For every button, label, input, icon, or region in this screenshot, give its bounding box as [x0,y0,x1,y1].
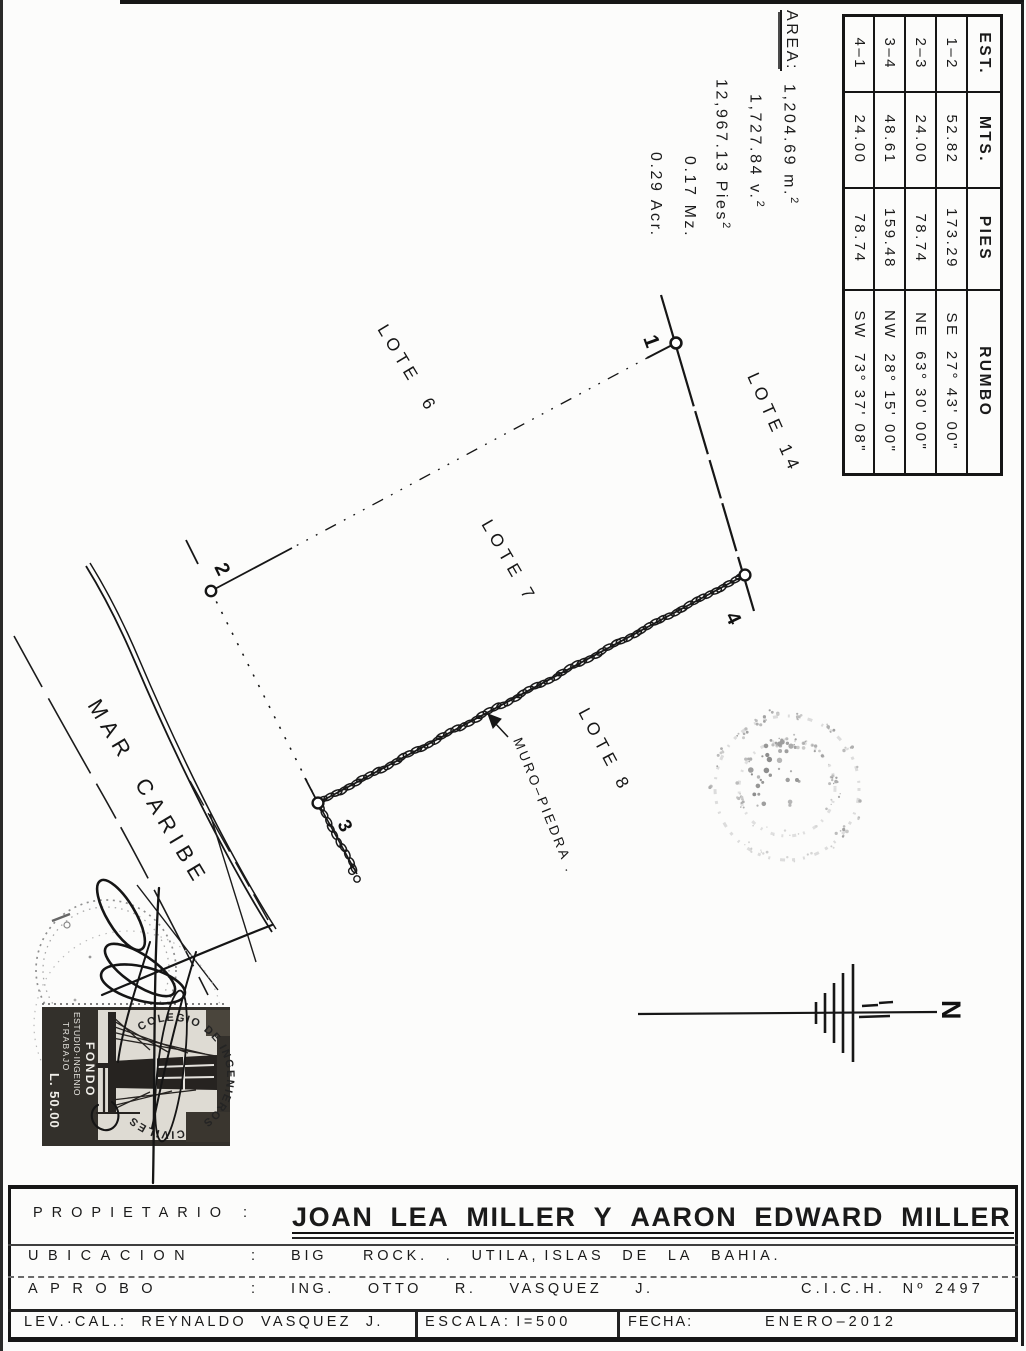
svg-text:3: 3 [333,816,357,835]
svg-text:FONDO: FONDO [83,1042,97,1098]
svg-text:L. 50.00: L. 50.00 [47,1073,62,1129]
svg-text:1: 1 [638,332,664,351]
svg-text:2: 2 [210,560,235,580]
svg-text:4: 4 [721,609,746,629]
svg-text:LOTE 14: LOTE 14 [743,369,805,476]
svg-text:N: N [936,1000,966,1020]
svg-text:LOTE 8: LOTE 8 [574,704,635,796]
svg-text:ESTUDIO·INGENIO: ESTUDIO·INGENIO [72,1012,82,1096]
svg-text:LOTE 6: LOTE 6 [374,321,443,417]
svg-text:MURO–PIEDRA .: MURO–PIEDRA . [510,736,578,877]
svg-text:TRABAJO: TRABAJO [61,1022,71,1072]
svg-text:LOTE 7: LOTE 7 [478,516,542,607]
